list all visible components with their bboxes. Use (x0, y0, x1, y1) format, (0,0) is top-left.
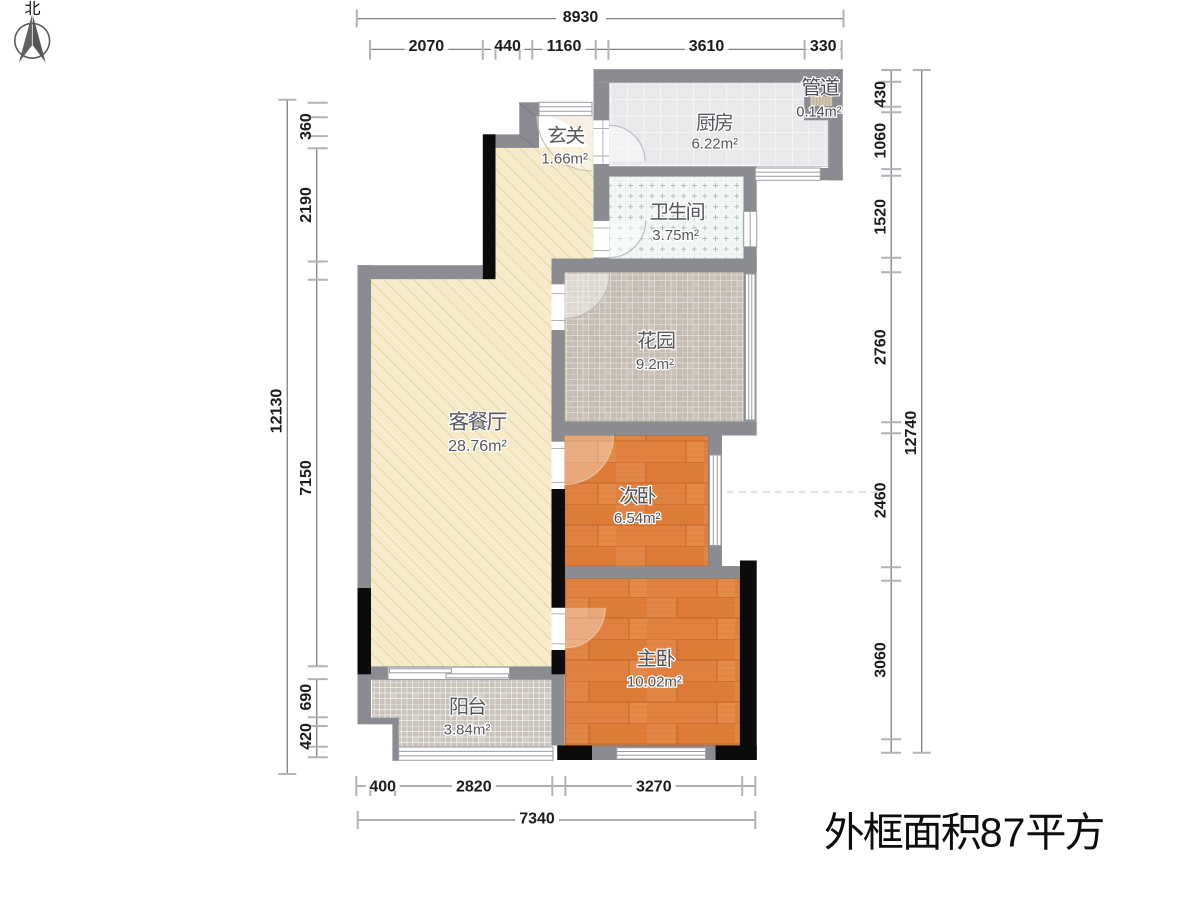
svg-text:7150: 7150 (298, 460, 315, 496)
svg-text:6.22m²: 6.22m² (691, 136, 738, 153)
svg-text:400: 400 (369, 778, 396, 795)
svg-text:10.02m²: 10.02m² (627, 673, 682, 690)
svg-text:420: 420 (298, 723, 315, 750)
svg-text:28.76m²: 28.76m² (448, 438, 507, 455)
svg-text:1.66m²: 1.66m² (541, 150, 588, 167)
svg-text:3270: 3270 (636, 778, 672, 795)
svg-text:440: 440 (494, 38, 521, 55)
svg-text:7340: 7340 (519, 810, 555, 827)
svg-text:12740: 12740 (903, 411, 920, 456)
svg-text:1060: 1060 (873, 123, 890, 159)
svg-text:12130: 12130 (269, 389, 286, 434)
svg-text:1520: 1520 (873, 199, 890, 235)
svg-text:3.84m²: 3.84m² (444, 721, 491, 738)
svg-text:2460: 2460 (873, 482, 890, 518)
svg-text:3.75m²: 3.75m² (652, 227, 699, 244)
svg-text:1160: 1160 (547, 38, 582, 55)
svg-text:330: 330 (810, 38, 837, 55)
svg-text:8930: 8930 (563, 9, 599, 26)
svg-text:2820: 2820 (456, 778, 492, 795)
svg-text:690: 690 (298, 684, 315, 711)
svg-text:6.54m²: 6.54m² (614, 510, 661, 527)
svg-text:2760: 2760 (873, 329, 890, 365)
svg-text:3060: 3060 (873, 642, 890, 678)
svg-text:3610: 3610 (689, 38, 725, 55)
svg-text:9.2m²: 9.2m² (636, 356, 674, 373)
svg-text:360: 360 (298, 113, 315, 140)
svg-text:0.14m²: 0.14m² (796, 105, 841, 121)
svg-text:2070: 2070 (409, 38, 445, 55)
svg-text:2190: 2190 (298, 187, 315, 223)
svg-text:87: 87 (980, 810, 1026, 856)
svg-text:430: 430 (873, 81, 890, 108)
